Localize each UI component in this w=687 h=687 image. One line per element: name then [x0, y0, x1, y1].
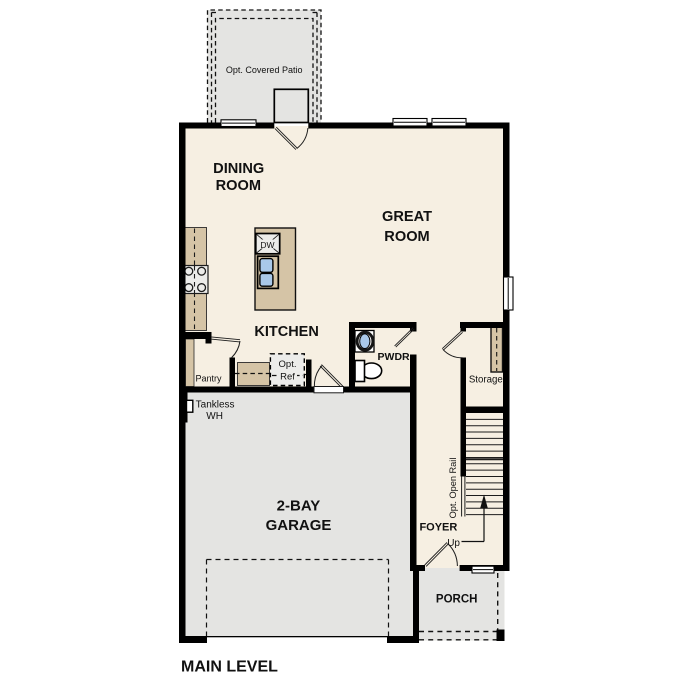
svg-text:PORCH: PORCH [436, 594, 478, 606]
svg-text:MAIN LEVEL: MAIN LEVEL [181, 659, 278, 676]
svg-text:Opt. Covered Patio: Opt. Covered Patio [226, 65, 303, 75]
svg-text:DINING: DINING [213, 161, 264, 177]
svg-text:Storage: Storage [469, 374, 503, 385]
svg-text:ROOM: ROOM [384, 229, 429, 245]
svg-text:PWDR: PWDR [378, 351, 410, 363]
svg-text:Opt.: Opt. [279, 359, 297, 370]
svg-text:Ref: Ref [280, 372, 295, 383]
svg-text:KITCHEN: KITCHEN [254, 324, 318, 340]
svg-text:GARAGE: GARAGE [266, 517, 332, 534]
svg-text:2-BAY: 2-BAY [277, 497, 321, 514]
svg-text:WH: WH [206, 411, 223, 422]
svg-text:Pantry: Pantry [195, 374, 222, 384]
svg-text:ROOM: ROOM [216, 178, 261, 194]
svg-text:Opt. Open Rail: Opt. Open Rail [448, 458, 458, 519]
svg-text:GREAT: GREAT [382, 209, 432, 225]
svg-text:Tankless: Tankless [196, 400, 235, 411]
svg-text:FOYER: FOYER [419, 522, 457, 534]
svg-text:Up: Up [447, 538, 460, 549]
svg-text:DW: DW [260, 240, 274, 250]
